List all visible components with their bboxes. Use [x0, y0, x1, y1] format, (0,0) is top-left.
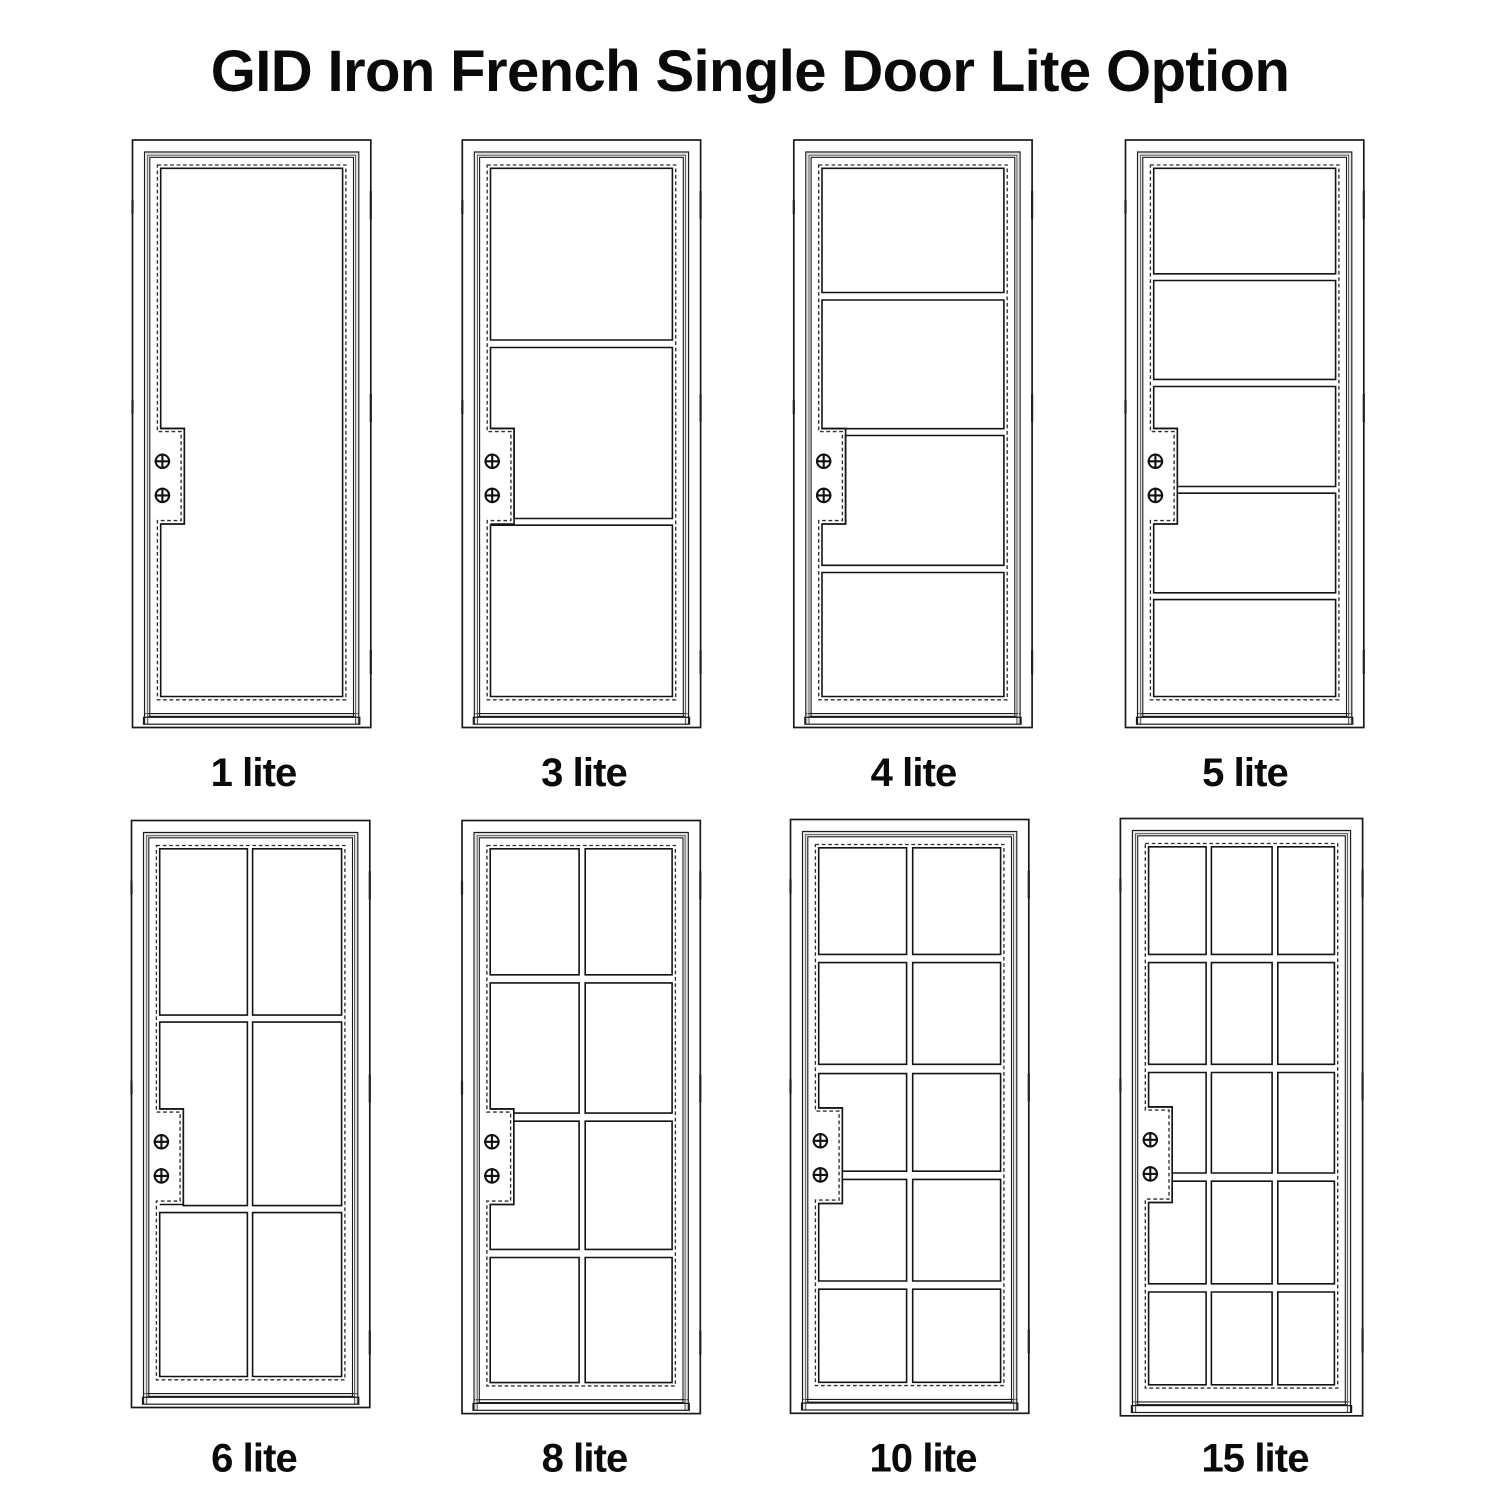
svg-text:15 lite: 15 lite: [1201, 1437, 1308, 1481]
svg-text:10 lite: 10 lite: [869, 1437, 976, 1481]
svg-text:8 lite: 8 lite: [542, 1437, 628, 1481]
svg-text:3 lite: 3 lite: [541, 751, 627, 795]
svg-text:GID Iron French Single Door Li: GID Iron French Single Door Lite Option: [211, 39, 1290, 104]
svg-text:4 lite: 4 lite: [871, 751, 957, 795]
svg-text:1 lite: 1 lite: [211, 751, 297, 795]
svg-text:5 lite: 5 lite: [1202, 751, 1288, 795]
svg-text:6 lite: 6 lite: [211, 1437, 297, 1481]
